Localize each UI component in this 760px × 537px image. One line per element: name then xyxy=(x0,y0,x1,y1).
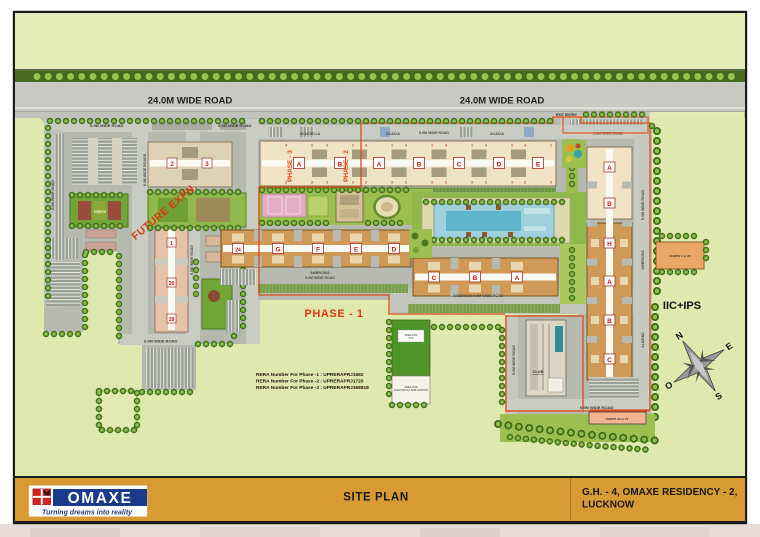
svg-text:G.H. - 4, OMAXE RESIDENCY - 2,: G.H. - 4, OMAXE RESIDENCY - 2, xyxy=(582,487,738,498)
svg-text:OMAXE: OMAXE xyxy=(68,490,133,507)
svg-text:SHOPS 20 to 27: SHOPS 20 to 27 xyxy=(606,417,629,421)
svg-text:H: H xyxy=(607,241,612,248)
svg-text:1: 1 xyxy=(170,241,173,247)
svg-text:26: 26 xyxy=(169,281,175,287)
svg-text:F: F xyxy=(316,247,320,254)
svg-text:E: E xyxy=(536,162,541,169)
svg-text:24: 24 xyxy=(235,248,241,254)
svg-text:3: 3 xyxy=(471,181,473,185)
svg-text:Turning dreams into reality: Turning dreams into reality xyxy=(42,510,133,517)
svg-text:A: A xyxy=(607,279,612,286)
svg-text:C: C xyxy=(607,357,612,364)
svg-text:3: 3 xyxy=(431,181,433,185)
svg-text:G: G xyxy=(275,247,280,254)
svg-text:4: 4 xyxy=(445,144,447,148)
svg-text:3: 3 xyxy=(311,181,313,185)
svg-text:1: 1 xyxy=(471,144,473,148)
svg-text:B: B xyxy=(417,162,422,169)
svg-text:6.0M WIDE ROAD: 6.0M WIDE ROAD xyxy=(144,339,177,344)
svg-text:1: 1 xyxy=(352,144,354,148)
svg-text:IIC+IPS: IIC+IPS xyxy=(663,300,701,312)
svg-text:3: 3 xyxy=(550,181,552,185)
svg-text:AMBROSIA 9.0M WIDE ROAD: AMBROSIA 9.0M WIDE ROAD xyxy=(453,294,504,298)
svg-text:STP: STP xyxy=(408,336,413,340)
svg-text:1: 1 xyxy=(431,144,433,148)
svg-text:1: 1 xyxy=(311,144,313,148)
svg-text:A: A xyxy=(297,162,302,169)
svg-text:9.0M WIDE ROAD: 9.0M WIDE ROAD xyxy=(305,276,335,280)
svg-text:ACACIA: ACACIA xyxy=(490,132,504,136)
svg-text:2: 2 xyxy=(405,181,407,185)
svg-text:SITE PLAN: SITE PLAN xyxy=(343,492,408,504)
svg-text:1: 1 xyxy=(511,144,513,148)
svg-text:6.0M WIDE ROAD: 6.0M WIDE ROAD xyxy=(580,405,613,410)
svg-text:GREEN: GREEN xyxy=(94,210,107,214)
svg-text:4: 4 xyxy=(326,144,328,148)
svg-text:24.0M WIDE ROAD: 24.0M WIDE ROAD xyxy=(148,96,233,107)
svg-text:PHASE - 2: PHASE - 2 xyxy=(343,150,350,182)
svg-text:4: 4 xyxy=(365,144,367,148)
svg-text:A: A xyxy=(607,165,612,172)
svg-text:24.0M WIDE ROAD: 24.0M WIDE ROAD xyxy=(460,96,545,107)
svg-text:ACACIELLA: ACACIELLA xyxy=(300,132,321,136)
svg-text:9.0M WIDE ROAD: 9.0M WIDE ROAD xyxy=(512,345,516,375)
svg-text:D: D xyxy=(497,162,502,169)
svg-text:PHASE - 3: PHASE - 3 xyxy=(287,150,294,182)
svg-text:B: B xyxy=(338,162,343,169)
svg-text:4: 4 xyxy=(285,144,287,148)
svg-text:2: 2 xyxy=(365,181,367,185)
svg-text:B: B xyxy=(473,275,478,282)
svg-text:LUCKNOW: LUCKNOW xyxy=(582,500,635,511)
svg-text:4: 4 xyxy=(524,144,526,148)
svg-text:9.0M WIDE ROAD: 9.0M WIDE ROAD xyxy=(641,190,645,220)
svg-text:2: 2 xyxy=(524,181,526,185)
svg-text:4: 4 xyxy=(405,144,407,148)
svg-text:ELECTRICAL SUB-STATION: ELECTRICAL SUB-STATION xyxy=(394,388,428,392)
svg-text:RERA Number For Phase -2 : UPR: RERA Number For Phase -2 : UPRERAPRJ1720 xyxy=(256,379,364,385)
svg-text:B: B xyxy=(607,201,612,208)
svg-text:9.0M WIDE ROAD: 9.0M WIDE ROAD xyxy=(419,131,449,135)
svg-text:3: 3 xyxy=(391,181,393,185)
svg-text:1: 1 xyxy=(550,144,552,148)
svg-text:D: D xyxy=(392,247,397,254)
svg-text:AMBROSIA: AMBROSIA xyxy=(641,250,645,270)
svg-text:RERA Number For Phase -3 : UPR: RERA Number For Phase -3 : UPRERAPRJ3688… xyxy=(256,385,369,391)
svg-text:E: E xyxy=(354,247,359,254)
svg-text:C: C xyxy=(457,162,462,169)
svg-text:2: 2 xyxy=(445,181,447,185)
svg-text:C: C xyxy=(432,275,437,282)
svg-text:2: 2 xyxy=(485,181,487,185)
svg-text:3: 3 xyxy=(511,181,513,185)
svg-text:3: 3 xyxy=(352,181,354,185)
svg-text:1: 1 xyxy=(391,144,393,148)
svg-text:B: B xyxy=(607,318,612,325)
svg-text:8.0M WIDE ROADS: 8.0M WIDE ROADS xyxy=(143,153,147,186)
svg-text:SHOPS 1 to 20: SHOPS 1 to 20 xyxy=(670,254,691,258)
svg-text:RERA Number For Phase -1 : UPR: RERA Number For Phase -1 : UPRERAPRJ1682 xyxy=(256,372,364,378)
svg-text:4: 4 xyxy=(485,144,487,148)
svg-text:ALMOND: ALMOND xyxy=(641,332,645,348)
svg-text:2: 2 xyxy=(326,181,328,185)
svg-text:A: A xyxy=(515,275,520,282)
svg-text:PHASE - 1: PHASE - 1 xyxy=(304,308,363,320)
svg-text:6.0M WIDE ROAD: 6.0M WIDE ROAD xyxy=(51,180,55,210)
svg-text:28: 28 xyxy=(169,317,175,323)
svg-text:CLUB: CLUB xyxy=(532,369,543,374)
svg-text:A: A xyxy=(377,162,382,169)
svg-text:ACACIA: ACACIA xyxy=(386,132,400,136)
svg-text:AMBROSIA: AMBROSIA xyxy=(310,271,330,275)
